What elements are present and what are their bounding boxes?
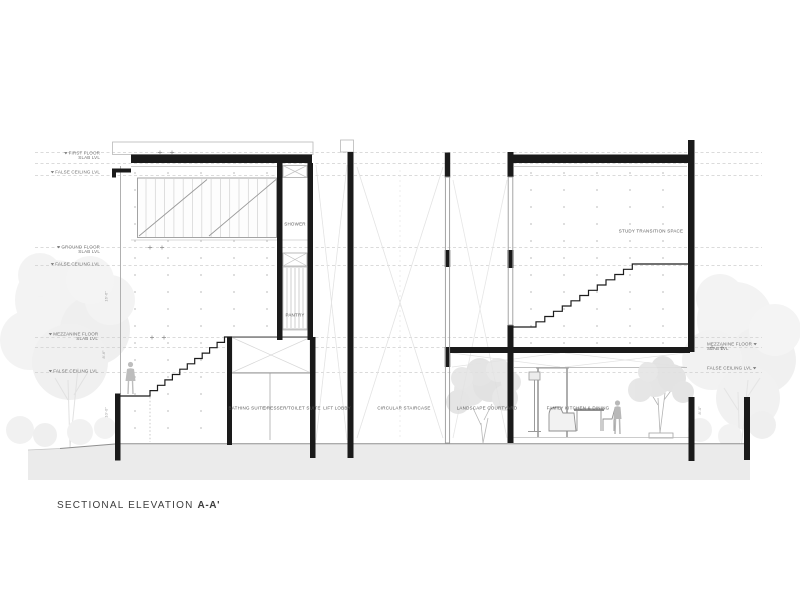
level-label-mezzanine: MEZZANINE FLOOR SLAB LVL	[48, 332, 98, 341]
level-marker-icon	[57, 246, 60, 248]
family-room-wall	[508, 325, 514, 443]
roof-slab-right	[512, 155, 689, 164]
level-label-mezzanine-right: MEZZANINE FLOOR SLAB LVL	[707, 342, 757, 351]
entry-wall	[115, 394, 121, 461]
floor-lamp	[528, 372, 541, 432]
level-label-false-ceiling-3: FALSE CEILING LVL	[48, 369, 98, 373]
circular-staircase-lines	[357, 167, 443, 438]
section-drawing	[0, 0, 800, 611]
dining-table	[574, 409, 604, 432]
dimension-text: 16'-6"	[104, 291, 109, 301]
room-label-pantry: PANTRY	[285, 312, 304, 317]
wardrobe-panel	[131, 178, 312, 240]
room-label-bathing-suite: BATHING SUITE	[229, 405, 266, 410]
sectional-elevation-sheet: FIRST FLOOR SLAB LVL FALSE CEILING LVL G…	[0, 0, 800, 611]
level-marker-icon	[51, 171, 54, 173]
level-marker-icon	[51, 263, 54, 265]
room-label-lift-lobby: LIFT LOBBY	[323, 405, 351, 410]
boundary-wall	[744, 397, 750, 460]
title-text: SECTIONAL ELEVATION	[57, 500, 194, 511]
dimension-text: 8'-6"	[102, 351, 107, 359]
right-column-lower	[689, 397, 695, 461]
title-section-mark: A-A'	[198, 500, 221, 511]
person-kitchen	[614, 400, 622, 434]
drawing-title: SECTIONAL ELEVATION A-A'	[57, 500, 220, 511]
mezzanine-slab	[445, 347, 690, 353]
room-label-dresser-toilet-suite: DRESSER/TOILET SUITE	[263, 405, 320, 410]
slab-ledge	[112, 169, 131, 173]
dimension-text: 10'-0"	[104, 407, 109, 417]
level-label-first-floor: FIRST FLOOR SLAB LVL	[50, 151, 100, 160]
right-column-upper	[688, 140, 695, 352]
shaft-column-left	[277, 163, 283, 340]
room-label-landscape-courtyard: LANDSCAPE COURTYARD	[457, 405, 518, 410]
level-marker-icon	[64, 152, 67, 154]
dimension-text: 8'-0"	[698, 407, 703, 415]
lounge-chair	[549, 407, 576, 431]
room-label-family-kitchen-dining: FAMILY KITCHEN & DINING	[547, 405, 610, 410]
center-column	[348, 152, 354, 458]
level-marker-icon	[49, 333, 52, 335]
level-label-false-ceiling-2: FALSE CEILING LVL	[50, 262, 100, 266]
roof-slab-left	[131, 155, 312, 164]
level-marker-icon	[753, 343, 756, 345]
level-label-false-ceiling-1: FALSE CEILING LVL	[50, 170, 100, 174]
lobby-column	[310, 337, 316, 458]
room-label-circular-staircase: CIRCULAR STAIRCASE	[377, 405, 430, 410]
background-tree-left	[0, 253, 135, 448]
bathing-suite-wall	[227, 337, 232, 445]
level-marker-icon	[753, 367, 756, 369]
shaft-column-right	[308, 163, 314, 340]
lift-shaft-lines	[316, 165, 347, 440]
room-label-study-transition-space: STUDY TRANSITION SPACE	[619, 228, 683, 233]
level-label-ground-floor: GROUND FLOOR SLAB LVL	[50, 245, 100, 254]
ground	[28, 438, 750, 481]
mullion-collar	[445, 153, 450, 178]
room-label-shower: SHOWER	[284, 221, 306, 226]
level-label-false-ceiling-right: FALSE CEILING LVL	[707, 366, 757, 370]
mezzanine-brace-box	[232, 337, 310, 373]
level-marker-icon	[49, 370, 52, 372]
